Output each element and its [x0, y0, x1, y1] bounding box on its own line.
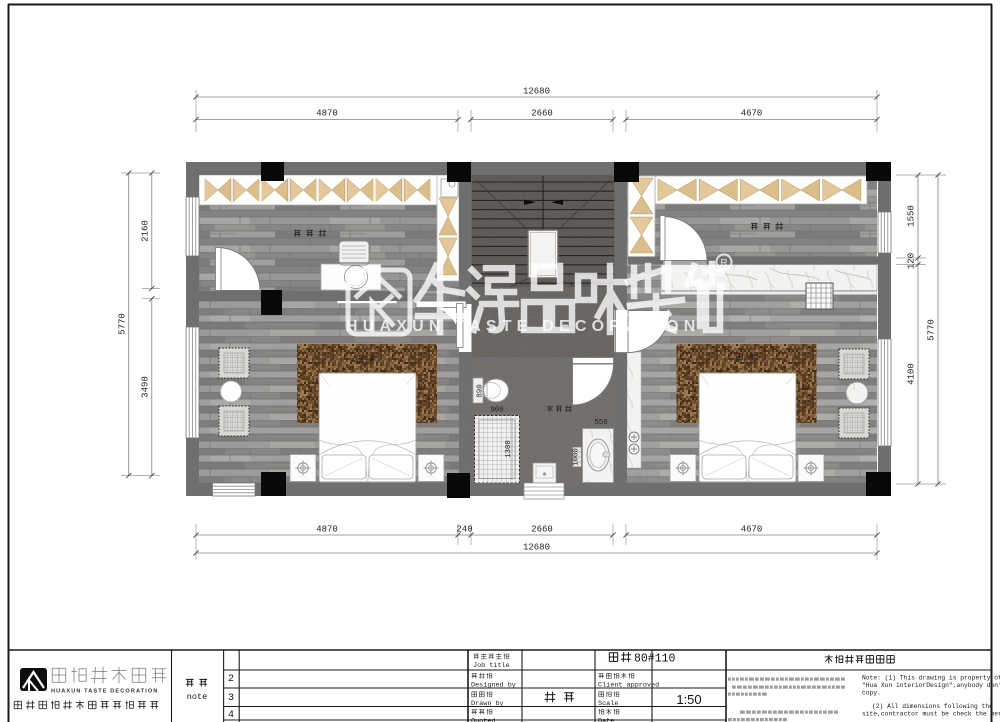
svg-text:Scale: Scale	[598, 700, 618, 708]
svg-text:Quoted: Quoted	[471, 718, 495, 722]
svg-text:240: 240	[456, 525, 472, 535]
svg-text:(2) All dimensions following t: (2) All dimensions following the	[872, 703, 993, 710]
svg-text:Note: (1) This drawing is pro: Note: (1) This drawing is property of	[862, 675, 1000, 682]
svg-text:HUAXUN TASTE DECORATION: HUAXUN TASTE DECORATION	[346, 318, 701, 335]
svg-text:2660: 2660	[531, 525, 553, 535]
svg-text:4670: 4670	[741, 525, 763, 535]
svg-text:HUAXUN TASTE DECORATION: HUAXUN TASTE DECORATION	[51, 689, 158, 695]
svg-text:1:50: 1:50	[676, 692, 701, 707]
svg-text:900: 900	[490, 407, 503, 415]
svg-text:Designed by: Designed by	[471, 682, 516, 690]
svg-text:4100: 4100	[907, 363, 917, 385]
svg-text:site,contractor must be check: site,contractor must be check the mersu	[862, 711, 1000, 718]
svg-text:2: 2	[228, 674, 234, 685]
svg-text:4870: 4870	[316, 525, 338, 535]
svg-text:"Hua Xun interiorDesign",anybo: "Hua Xun interiorDesign",anybody don't	[862, 682, 1000, 689]
svg-text:4: 4	[228, 710, 234, 721]
svg-text:80#110: 80#110	[634, 653, 676, 666]
svg-text:note: note	[187, 692, 207, 702]
svg-text:1000: 1000	[573, 448, 581, 466]
svg-text:copy.: copy.	[862, 690, 881, 697]
svg-text:120: 120	[907, 253, 917, 269]
svg-text:4870: 4870	[316, 109, 338, 119]
svg-text:3490: 3490	[141, 376, 151, 398]
svg-text:550: 550	[594, 419, 607, 427]
svg-text:890: 890	[477, 384, 485, 397]
svg-text:Job title: Job title	[473, 662, 510, 670]
svg-text:1300: 1300	[505, 440, 513, 458]
svg-text:R: R	[720, 258, 727, 269]
svg-text:Client approved: Client approved	[598, 682, 659, 690]
svg-text:Date: Date	[598, 718, 614, 722]
svg-text:Drawn by: Drawn by	[471, 700, 504, 708]
svg-text:12680: 12680	[523, 543, 550, 553]
svg-text:5770: 5770	[927, 319, 937, 341]
svg-text:2160: 2160	[141, 220, 151, 242]
svg-text:12680: 12680	[523, 87, 550, 97]
svg-text:1550: 1550	[907, 205, 917, 227]
svg-text:4670: 4670	[741, 109, 763, 119]
svg-text:5770: 5770	[118, 313, 128, 335]
svg-text:2660: 2660	[531, 109, 553, 119]
svg-text:3: 3	[228, 693, 234, 704]
